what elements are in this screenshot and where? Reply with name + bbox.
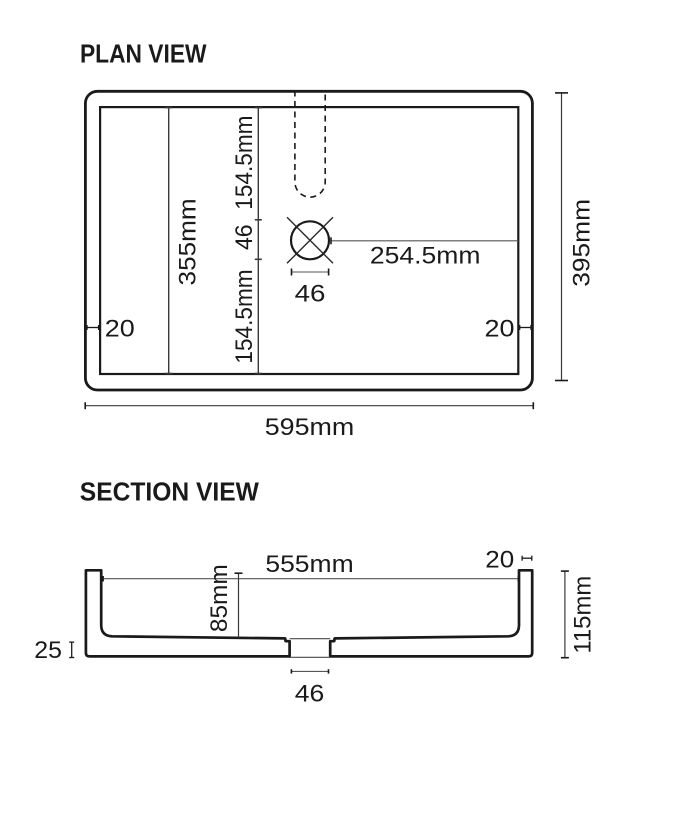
svg-text:355mm: 355mm — [175, 198, 202, 285]
svg-text:595mm: 595mm — [265, 414, 355, 441]
svg-text:46: 46 — [295, 681, 325, 708]
svg-text:PLAN VIEW: PLAN VIEW — [80, 40, 207, 68]
svg-text:20: 20 — [105, 316, 135, 343]
svg-text:SECTION VIEW: SECTION VIEW — [80, 479, 260, 507]
svg-text:115mm: 115mm — [570, 576, 597, 654]
svg-text:254.5mm: 254.5mm — [370, 243, 481, 270]
svg-text:154.5mm: 154.5mm — [231, 269, 258, 363]
svg-text:46: 46 — [231, 224, 258, 250]
svg-text:555mm: 555mm — [265, 551, 353, 578]
svg-text:20: 20 — [485, 316, 515, 343]
svg-text:85mm: 85mm — [206, 564, 233, 632]
svg-text:46: 46 — [295, 280, 326, 307]
svg-text:20: 20 — [485, 547, 514, 574]
svg-text:25: 25 — [34, 637, 62, 664]
svg-text:395mm: 395mm — [569, 199, 596, 287]
svg-text:154.5mm: 154.5mm — [231, 116, 258, 210]
